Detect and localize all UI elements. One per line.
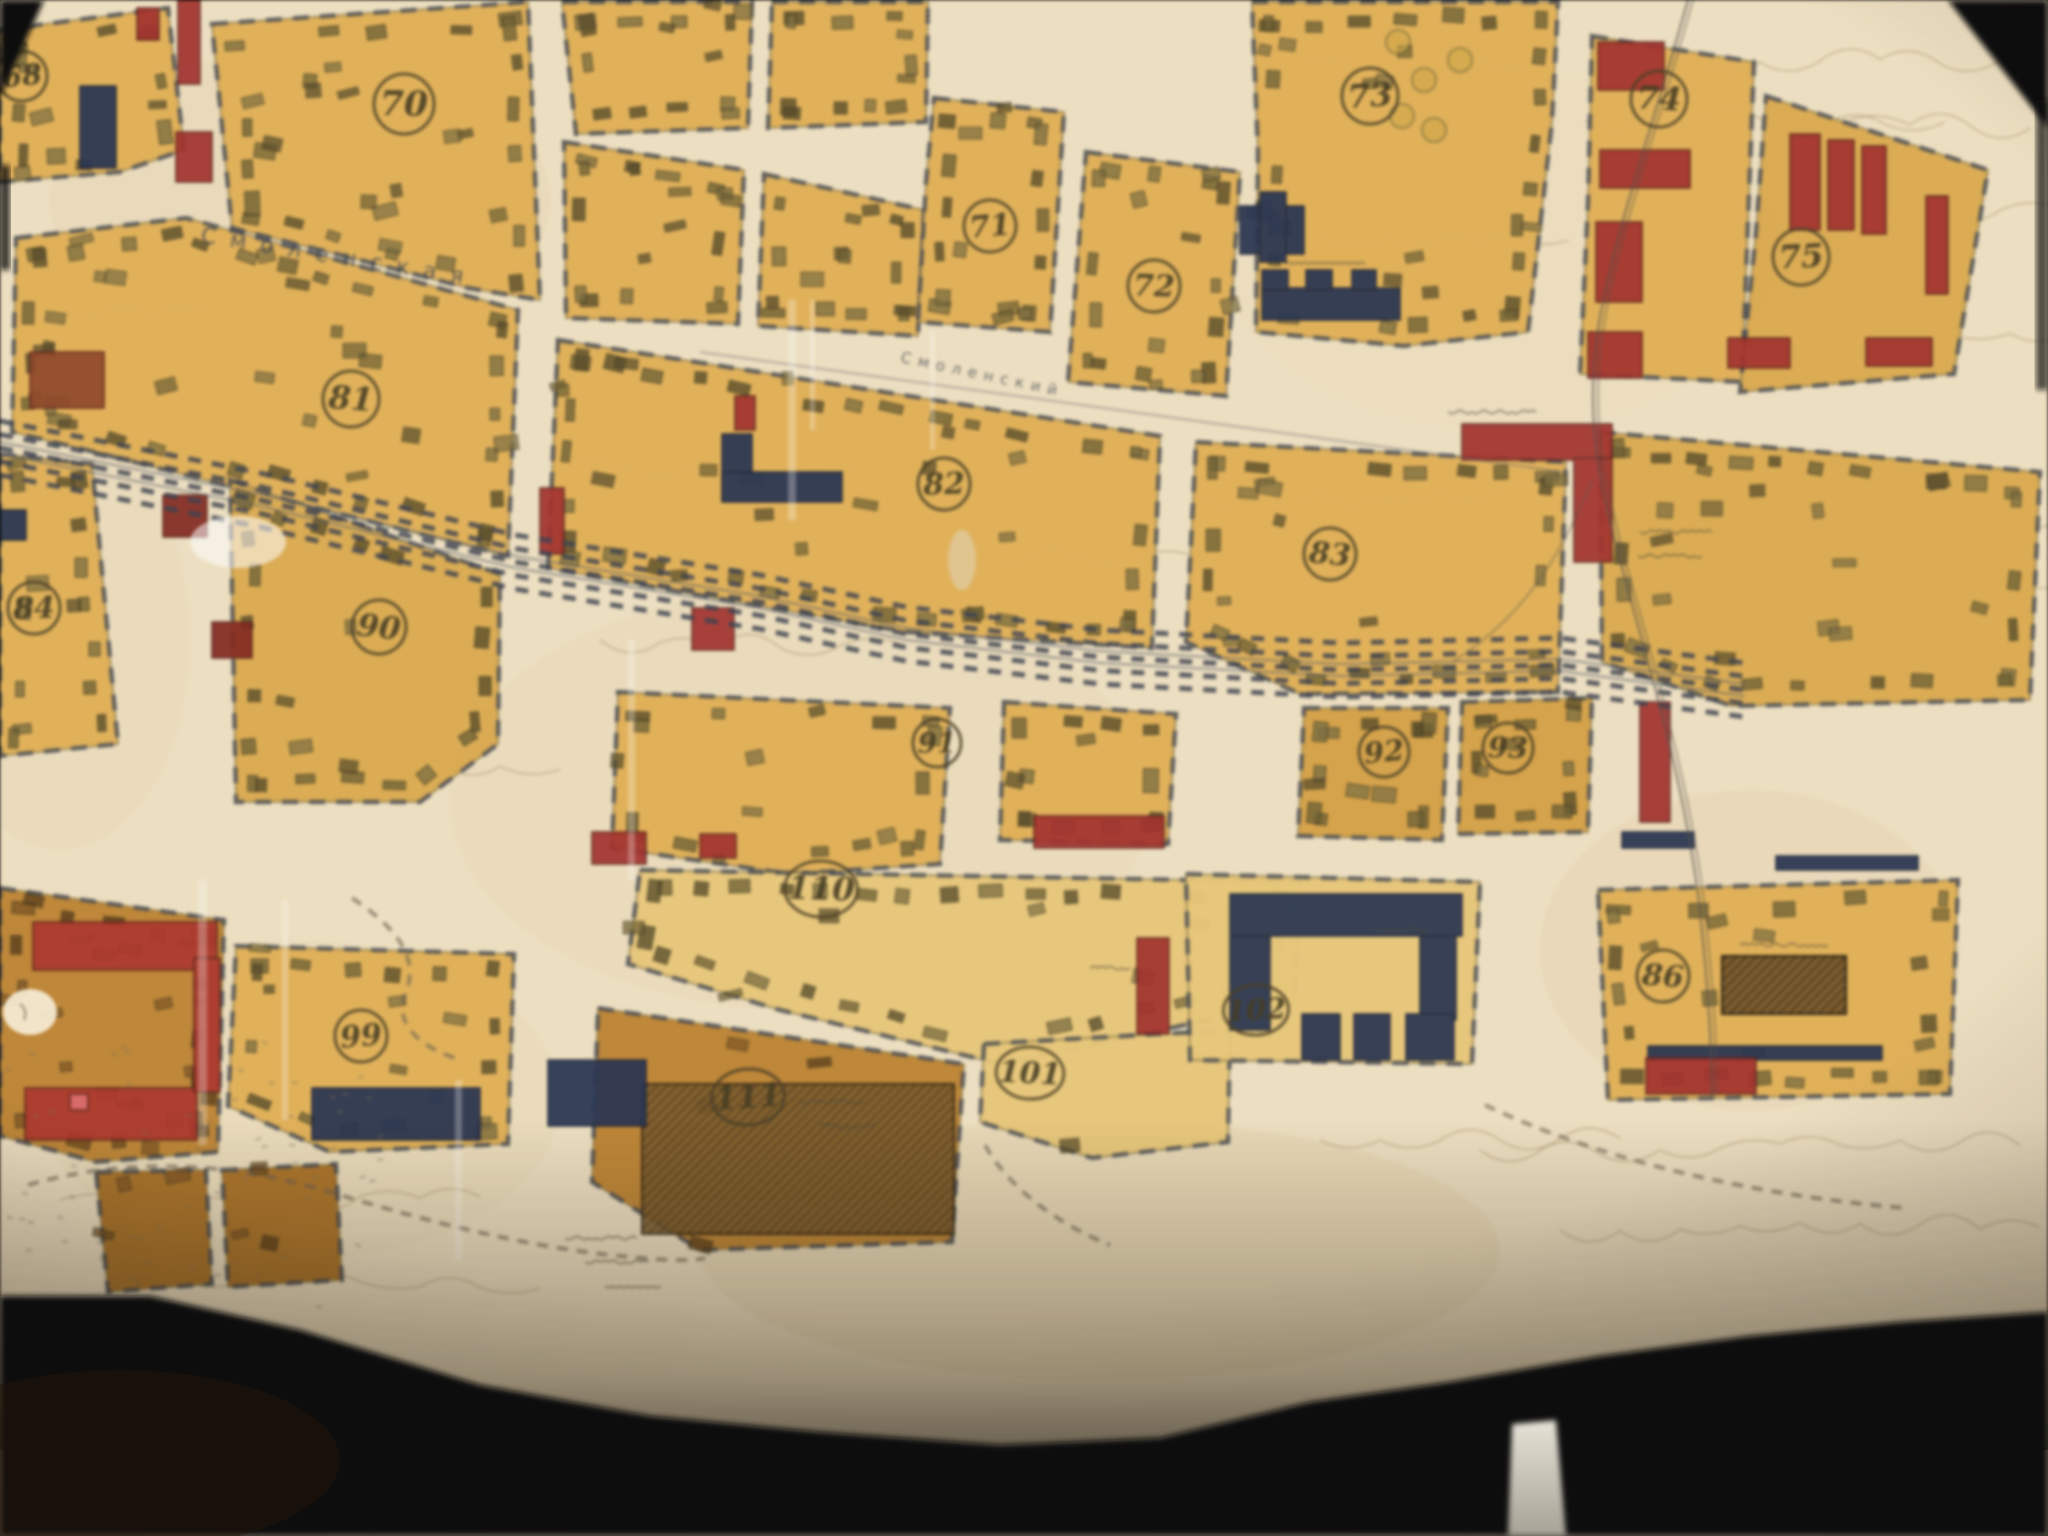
- chair-leg: [1508, 1420, 1566, 1536]
- dark-corner-tl: [0, 0, 44, 98]
- photo-foreground: [0, 0, 2048, 1536]
- dark-corner-tr: [1948, 0, 2048, 128]
- photo-of-old-city-map: 6870717273747581828384909192939911011110…: [0, 0, 2048, 1536]
